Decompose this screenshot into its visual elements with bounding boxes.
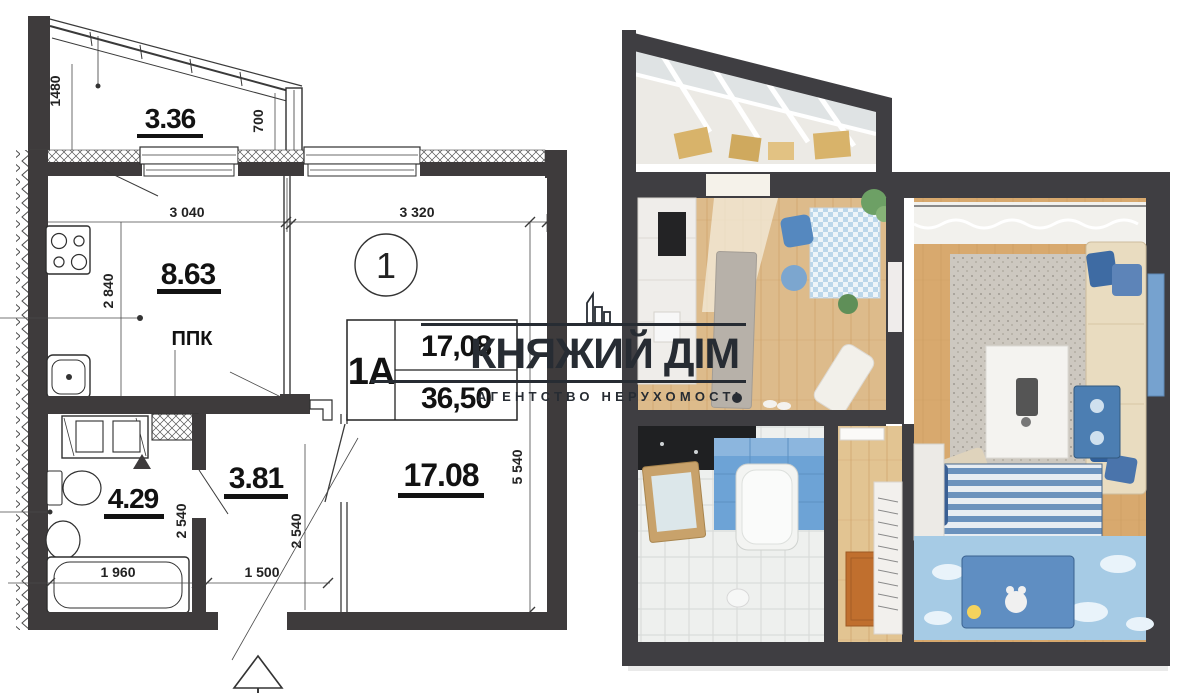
- photo-shadow: [628, 666, 1168, 671]
- dim-kitchen-width: 3 040: [169, 204, 204, 220]
- balcony-chair: [728, 134, 761, 162]
- watermark-bottom-rule: [371, 380, 746, 383]
- cooktop: [658, 212, 686, 256]
- area-hallway: 3.81: [229, 462, 284, 495]
- kitchen-living-wall: [280, 176, 332, 420]
- slipper: [763, 400, 777, 408]
- slipper: [777, 402, 791, 410]
- toy: [967, 605, 981, 619]
- blue-pillow: [1112, 264, 1142, 296]
- dim-living-depth: 5 540: [509, 449, 525, 484]
- ceiling-point: [96, 84, 101, 89]
- photo-bath-hall-wall: [824, 426, 838, 642]
- dim-balcony-window: 700: [250, 109, 266, 133]
- photo-entry-door: [888, 262, 902, 332]
- living-window: [304, 147, 420, 164]
- brand-dot: [732, 393, 742, 403]
- photo-hallway: [838, 426, 902, 642]
- area-kitchen: 8.63: [161, 258, 216, 291]
- blue-stool: [781, 265, 807, 291]
- entry-triangle-icon: [234, 656, 282, 688]
- sewing-machine: [1016, 378, 1038, 416]
- wall-pier: [280, 394, 310, 414]
- area-living-room: 17.08: [403, 457, 478, 493]
- balcony-table: [768, 142, 794, 160]
- top-dimension-line: 3 040 3 320: [35, 178, 560, 232]
- bathroom-bottom-wall: [28, 612, 218, 630]
- bathroom-wall-upper: [192, 414, 206, 470]
- plant: [838, 294, 858, 314]
- photo-balcony-door: [706, 174, 770, 196]
- dining-table: [810, 208, 880, 298]
- area-balcony: 3.36: [145, 103, 196, 134]
- door-jamb: [310, 400, 332, 420]
- photo-toilet: [727, 589, 749, 607]
- photo-living-room: [914, 198, 1164, 642]
- kitchen-window: [140, 147, 238, 164]
- photo-hall-living-wall: [902, 424, 914, 642]
- kitchen-bath-wall: [30, 396, 282, 414]
- photo-right-wall: [1146, 172, 1170, 666]
- wall-art: [1148, 274, 1164, 396]
- dim-hallway-width: 1 500: [244, 564, 279, 580]
- photo-kitchen-bath-wall: [634, 410, 886, 426]
- dim-kitchen-depth: 2 840: [100, 273, 116, 308]
- brand-name: КНЯЖИЙ ДІМ: [470, 330, 750, 379]
- photo-balcony: [622, 30, 892, 178]
- fire-panel-label: ППК: [172, 328, 214, 350]
- unit-number: 1: [376, 245, 396, 286]
- dim-balcony-depth: 1480: [47, 75, 63, 106]
- watermark-top-rule: [421, 323, 746, 326]
- living-bottom-wall: [287, 612, 567, 630]
- brand-buildings-icon: [582, 290, 612, 324]
- hall-door: [840, 428, 884, 440]
- balcony-room: 1480 700 3.36: [28, 16, 302, 152]
- insulation-hatch: [16, 150, 28, 630]
- vent-shaft: [152, 414, 198, 440]
- north-facade-wall: [30, 147, 567, 196]
- toilet-bowl: [63, 471, 101, 505]
- white-bench: [914, 444, 944, 540]
- bathroom-door-swing: [199, 470, 228, 514]
- area-bathroom: 4.29: [108, 483, 159, 514]
- dim-bathtub-length: 1 960: [100, 564, 135, 580]
- left-exterior-wall: [28, 150, 48, 630]
- striped-daybed: [940, 464, 1102, 542]
- balcony-bench: [813, 130, 851, 159]
- hallway-room: 3.81 2 540 1 500: [202, 414, 358, 693]
- dim-living-width: 3 320: [399, 204, 434, 220]
- washbasin: [46, 521, 80, 559]
- photo-bottom-wall: [622, 642, 1170, 666]
- toy-bunny: [1005, 591, 1027, 613]
- blue-chest: [1074, 386, 1120, 458]
- toilet-tank: [47, 471, 62, 505]
- stamp-unit-type: 1А: [348, 351, 395, 393]
- dim-bathroom-depth: 2 540: [173, 503, 189, 538]
- photo-top-wall: [622, 172, 1170, 198]
- dim-hallway-depth: 2 540: [288, 513, 304, 548]
- brand-tagline: АГЕНТСТВО НЕРУХОМОСТІ: [477, 389, 742, 404]
- blue-chair: [780, 214, 815, 249]
